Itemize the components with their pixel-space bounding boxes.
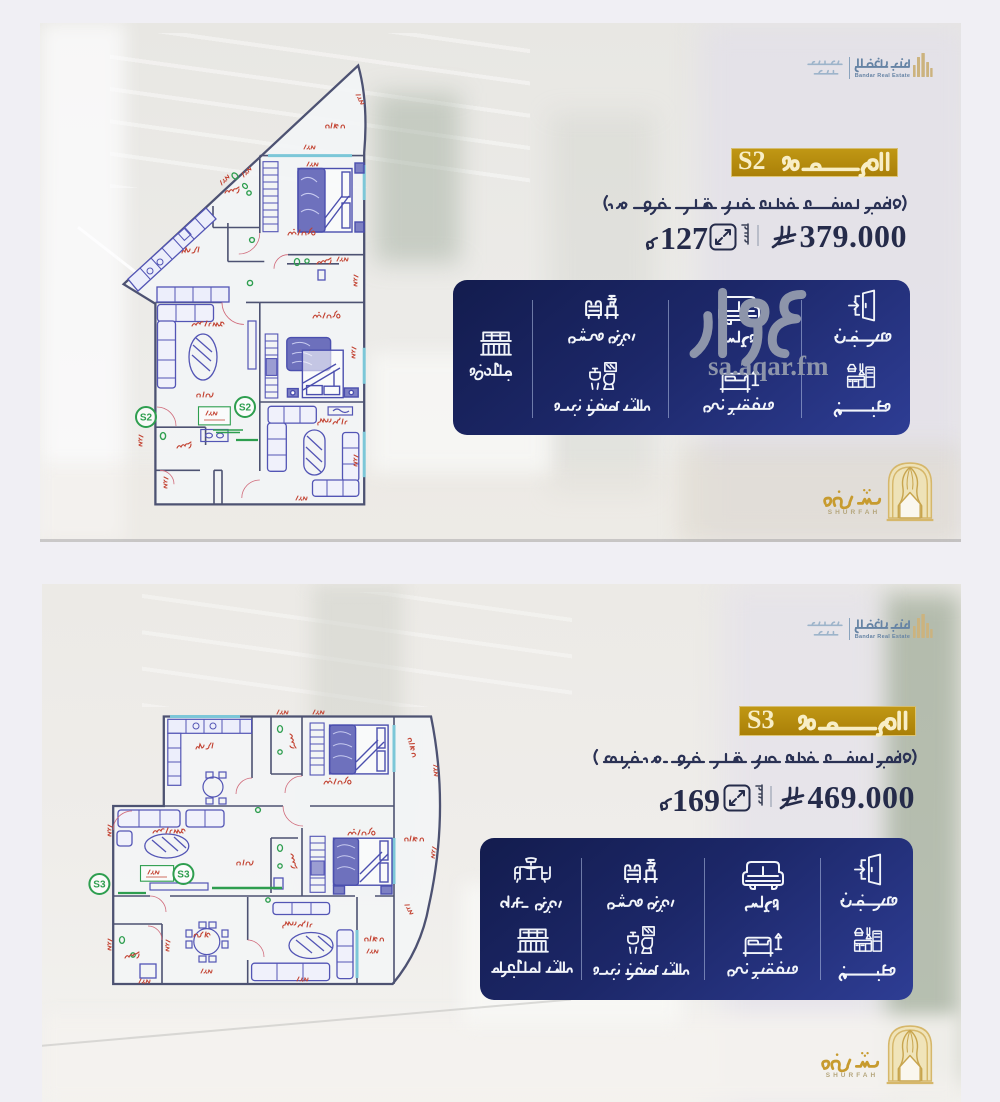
svg-text:S2: S2 [140,413,153,424]
svg-text:S3: S3 [177,870,190,881]
svg-text:S3: S3 [93,880,106,891]
svg-text:S2: S2 [239,403,252,414]
